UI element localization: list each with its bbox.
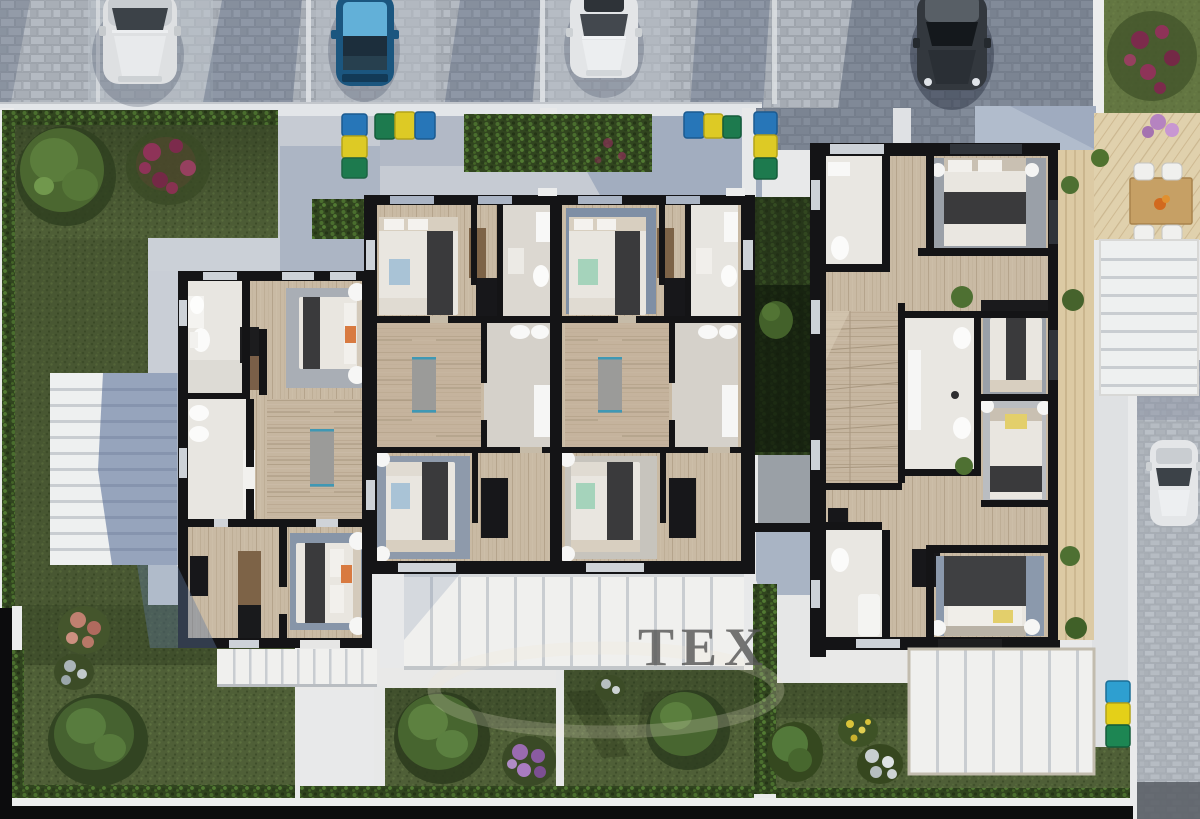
svg-text:TEX: TEX xyxy=(638,617,770,677)
